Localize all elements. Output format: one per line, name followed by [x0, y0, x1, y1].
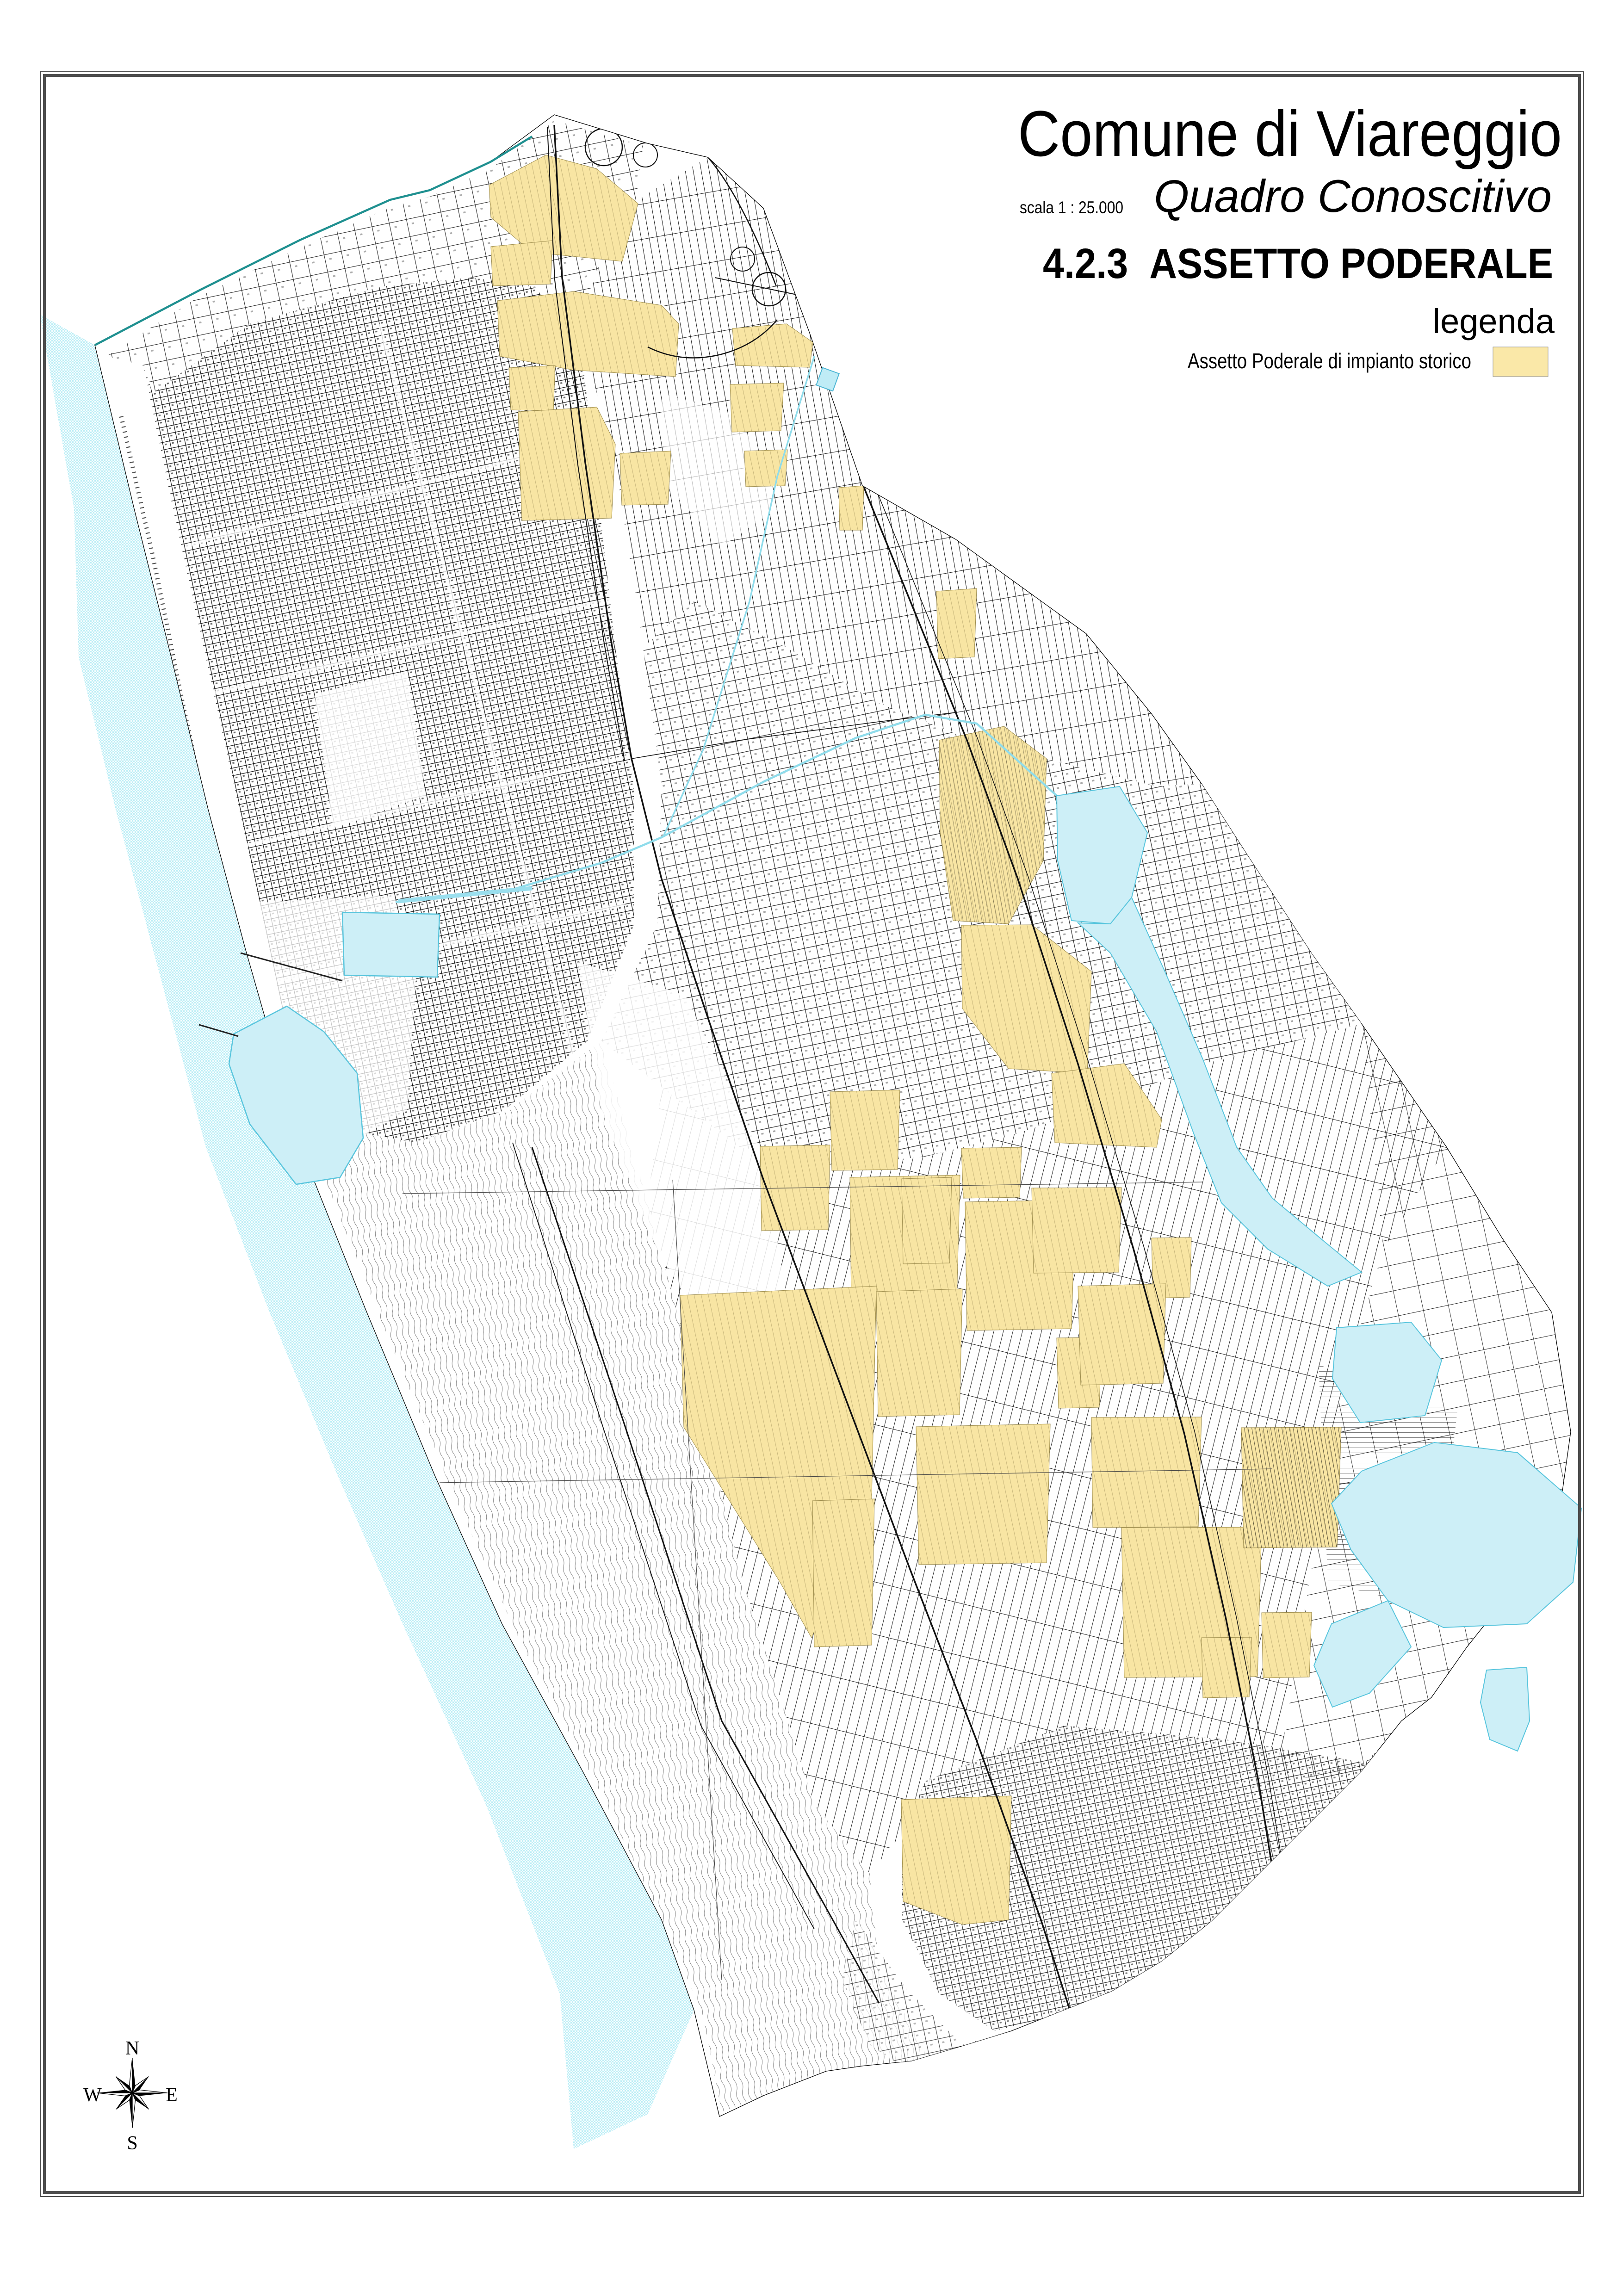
svg-text:Assetto Poderale di impianto s: Assetto Poderale di impianto storico — [1188, 349, 1471, 373]
svg-text:scala 1 : 25.000: scala 1 : 25.000 — [1020, 198, 1123, 217]
svg-text:S: S — [127, 2133, 137, 2154]
svg-text:W: W — [83, 2085, 102, 2106]
svg-text:E: E — [166, 2085, 178, 2106]
svg-text:4.2.3 ASSETTO PODERALE: 4.2.3 ASSETTO PODERALE — [1043, 240, 1553, 287]
svg-text:Quadro Conoscitivo: Quadro Conoscitivo — [1154, 170, 1552, 222]
svg-text:Comune di Viareggio: Comune di Viareggio — [1018, 97, 1562, 170]
svg-text:legenda: legenda — [1433, 302, 1555, 340]
svg-text:N: N — [125, 2038, 139, 2059]
